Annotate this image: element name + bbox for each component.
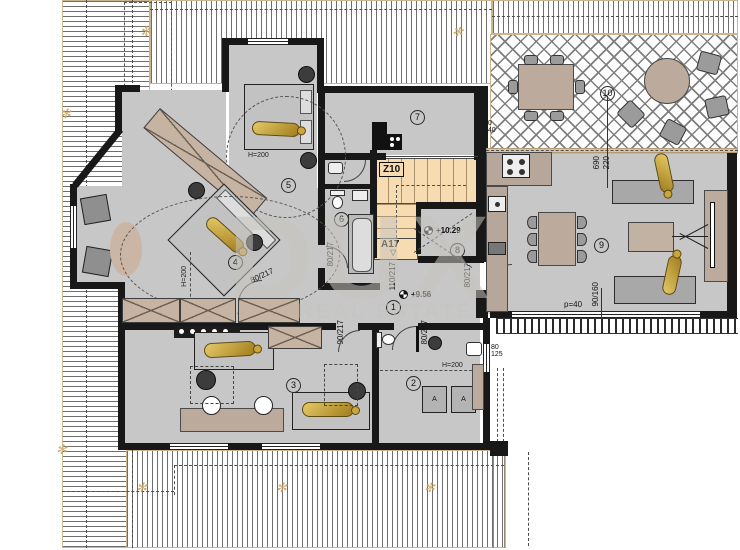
terrace-chair — [550, 111, 564, 121]
terrace-chair — [508, 80, 518, 94]
floor-plan-canvas: ✻ ✻ ✻ ✻ ✻ ✻ ✻ ✻ 10 Z10 A17 ▽ — [0, 0, 740, 550]
edge-line — [493, 456, 494, 548]
dining-chair — [577, 216, 587, 229]
toilet-bowl — [332, 196, 343, 209]
dining-chair — [527, 250, 537, 263]
room-number: 3 — [286, 378, 301, 393]
window-laundry — [483, 344, 490, 372]
roof-pitch-annotation: ✻ — [424, 480, 435, 496]
room-number: 8 — [450, 243, 465, 258]
terrace-round-table — [644, 58, 690, 104]
wall — [418, 202, 484, 209]
desk-chair — [254, 396, 273, 415]
roof-edge-dashed — [497, 368, 498, 442]
window — [262, 443, 320, 450]
dining-chair — [527, 216, 537, 229]
plant — [188, 182, 205, 199]
sofa — [614, 276, 696, 304]
window-width: 80 — [491, 344, 503, 351]
stair-walk-line — [396, 185, 397, 243]
figure-decoration — [204, 341, 257, 359]
wall — [727, 148, 737, 318]
wall — [318, 283, 380, 290]
dimension-value: 690 — [593, 156, 601, 169]
height-label: H=200 — [181, 266, 188, 287]
tv-angle-line — [672, 236, 708, 237]
armchair — [82, 246, 113, 277]
boiler — [428, 336, 442, 350]
door-dimension: 110/217 — [389, 262, 397, 290]
door-leaf — [416, 326, 419, 352]
window-dimension: 60 140 — [484, 120, 496, 135]
roof-edge-dashed — [528, 452, 529, 546]
dining-chair — [577, 250, 587, 263]
terrace-door-dashed — [486, 150, 738, 151]
wall — [222, 38, 229, 92]
coffee-table — [628, 222, 674, 252]
window — [70, 206, 77, 248]
stair-opening-line — [386, 156, 478, 157]
door-dimension: 80/217 — [421, 320, 429, 344]
skylight-dashed — [190, 366, 234, 404]
tv-screen — [710, 202, 715, 268]
washbasin — [328, 162, 343, 174]
level-marker-icon — [399, 290, 408, 299]
wall — [317, 86, 480, 93]
sofa — [612, 180, 694, 204]
washbasin — [352, 190, 368, 201]
level-value: +9.56 — [411, 291, 431, 299]
window-dimension: 90/160 — [592, 282, 600, 306]
washer-label: A — [432, 396, 437, 403]
wall — [378, 323, 394, 330]
room-number: 6 — [334, 212, 349, 227]
terrace-chair — [550, 55, 564, 65]
window-height: 140 — [484, 127, 496, 134]
roof-eave-line — [62, 491, 174, 492]
level-value: +10.29 — [436, 227, 461, 235]
knee-wall-line — [190, 252, 191, 302]
roof-pitch-annotation: ✻ — [276, 480, 287, 496]
terrace-chair — [524, 111, 538, 121]
dining-chair — [527, 233, 537, 246]
wall-stub — [490, 441, 508, 456]
stair-direction-icon: ▽ — [390, 248, 396, 257]
room-number: 1 — [386, 300, 401, 315]
roof-eave-line — [150, 9, 492, 10]
balcony-railing — [496, 318, 738, 334]
roof-pitch-annotation: ✻ — [60, 106, 71, 122]
level-marker-icon — [424, 226, 433, 235]
window-divider — [601, 288, 602, 318]
plant — [298, 66, 315, 83]
roof-eave-line — [174, 465, 504, 466]
sink — [488, 196, 506, 212]
height-label: H=200 — [248, 152, 269, 159]
roof-edge-dashed — [503, 368, 504, 442]
terrace-chair — [575, 80, 585, 94]
stove — [502, 154, 530, 178]
room-number: 9 — [594, 238, 609, 253]
chimney-flue — [387, 134, 402, 150]
wall — [115, 85, 122, 133]
window — [170, 443, 228, 450]
armchair — [80, 194, 111, 225]
parapet-label: p=40 — [564, 301, 582, 309]
wall — [490, 311, 512, 318]
roof-eave-line — [174, 465, 175, 495]
window-dimension: 80 125 — [491, 344, 503, 359]
shower — [348, 214, 374, 274]
height-label: H=200 — [442, 362, 463, 369]
roof-pitch-annotation: ✻ — [136, 480, 147, 496]
dining-chair — [577, 233, 587, 246]
roof-eave-line — [492, 16, 738, 17]
terrace-chair — [524, 55, 538, 65]
room-number: 7 — [410, 110, 425, 125]
edge-line — [504, 456, 505, 548]
dryer-label: A — [461, 396, 466, 403]
wardrobe — [180, 298, 236, 323]
stair-walk-line — [396, 185, 466, 186]
stair-label-upper: Z10 — [379, 162, 404, 177]
washbasin — [466, 342, 482, 356]
roof-pitch-annotation: ✻ — [56, 442, 67, 458]
wardrobe — [122, 298, 180, 323]
dimension-line — [607, 96, 608, 188]
window-living — [512, 311, 700, 318]
washer: A — [422, 386, 447, 413]
wall — [317, 38, 324, 93]
cabinet — [472, 364, 484, 410]
wall — [483, 318, 490, 344]
room-number: 4 — [228, 255, 243, 270]
wardrobe — [268, 326, 322, 349]
room-number: 2 — [406, 376, 421, 391]
wall — [483, 372, 490, 450]
door-dimension: 80/217 — [464, 263, 472, 287]
dimension-value: 220 — [603, 156, 611, 169]
height-dashed-line — [380, 370, 482, 371]
wall — [418, 256, 484, 263]
window-height: 125 — [491, 351, 503, 358]
room-number: 5 — [281, 178, 296, 193]
dishwasher — [488, 242, 506, 255]
dining-table — [538, 212, 576, 266]
window — [248, 38, 288, 45]
window-width: 60 — [484, 120, 496, 127]
wall — [70, 282, 125, 289]
chimney — [372, 122, 387, 150]
terrace-dining-table — [518, 64, 574, 110]
roof-hatch-top-right — [492, 0, 738, 34]
skylight-dashed — [324, 364, 358, 406]
knee-wall-dashed — [120, 196, 340, 314]
